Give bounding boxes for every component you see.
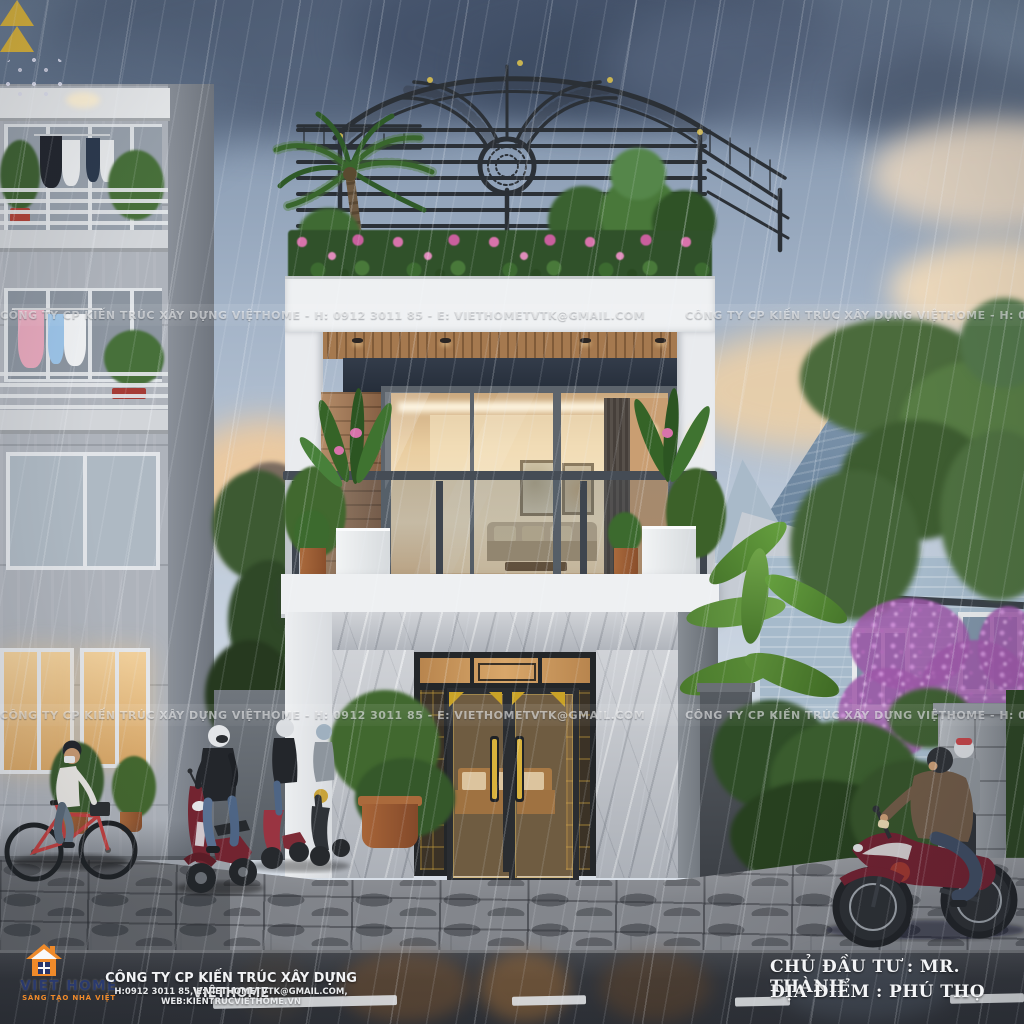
pink-flower xyxy=(334,446,344,455)
watermark-text: CÔNG TY CP KIẾN TRÚC XÂY DỰNG VIỆTHOME -… xyxy=(685,309,1024,322)
recessed-light xyxy=(655,338,666,343)
background-scooter-riders xyxy=(261,719,350,869)
transom-mullion xyxy=(538,658,542,683)
architectural-render: CÔNG TY CP KIẾN TRÚC XÂY DỰNG VIỆTHOME -… xyxy=(0,0,1024,1024)
pink-flower xyxy=(350,428,362,438)
recessed-light xyxy=(440,338,451,343)
recessed-light xyxy=(352,338,363,343)
project-location: ĐỊA ĐIỂM : PHÚ THỌ xyxy=(770,982,1016,1002)
glass-door-head-rail xyxy=(381,386,677,393)
transom-mullion xyxy=(470,658,474,683)
wood-slat-soffit xyxy=(291,332,709,359)
balcony-railing xyxy=(0,188,168,230)
pink-flower xyxy=(662,428,673,438)
rooftop-plant xyxy=(610,148,666,200)
balcony-slab xyxy=(0,230,168,252)
hanging-laundry xyxy=(86,138,100,182)
balcony-slab xyxy=(0,410,168,434)
watermark-band: CÔNG TY CP KIẾN TRÚC XÂY DỰNG VIỆTHOME -… xyxy=(0,304,1024,326)
white-flowers xyxy=(0,52,70,102)
watermark-text: CÔNG TY CP KIẾN TRÚC XÂY DỰNG VIỆTHOME -… xyxy=(0,309,645,322)
scooter-rider xyxy=(186,725,257,893)
eave-spotlight xyxy=(66,92,100,108)
house-icon xyxy=(26,944,62,978)
transom-decor xyxy=(478,663,536,681)
rooftop-flower-planter xyxy=(288,230,712,282)
recessed-light xyxy=(580,338,591,343)
gold-bottom-accent xyxy=(0,0,34,26)
watermark-text: CÔNG TY CP KIẾN TRÚC XÂY DỰNG VIỆTHOME -… xyxy=(685,709,1024,722)
motorcycle-rider xyxy=(836,747,1014,944)
balcony-railing xyxy=(0,372,168,410)
hanging-laundry xyxy=(40,136,62,188)
hanging-laundry xyxy=(62,140,80,186)
apartment-window xyxy=(6,452,160,570)
company-contact: H:0912 3011 85, E:VIETHOMETVTK@GMAIL.COM… xyxy=(84,987,378,1007)
watermark-text: CÔNG TY CP KIẾN TRÚC XÂY DỰNG VIỆTHOME -… xyxy=(0,709,645,722)
watermark-band: CÔNG TY CP KIẾN TRÚC XÂY DỰNG VIỆTHOME -… xyxy=(0,704,1024,726)
